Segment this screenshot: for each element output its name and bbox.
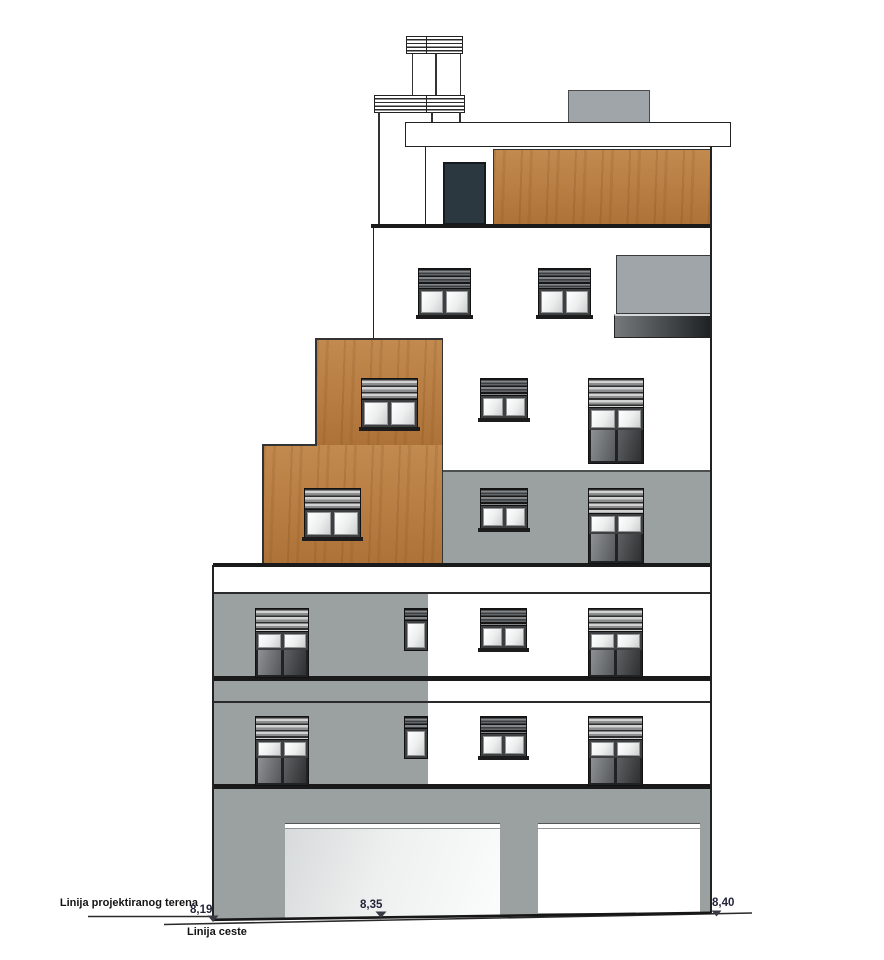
door-glass [589, 514, 643, 534]
window-panes [481, 734, 526, 756]
door-lower-panels [589, 650, 642, 677]
window-sill [478, 648, 529, 652]
roller-shutter-icon [256, 609, 308, 632]
recess-dark-band [614, 314, 711, 338]
chimney-cap [426, 36, 463, 54]
window [361, 378, 418, 428]
terrain-label: Linija projektiranog terena [40, 897, 198, 909]
window-panes [481, 506, 527, 528]
level-marker-icon [712, 911, 722, 917]
window-panes [405, 729, 427, 758]
roller-shutter-icon [589, 379, 643, 408]
window-sill [416, 315, 473, 319]
window-panes [481, 396, 527, 418]
roller-shutter-icon [362, 379, 417, 400]
roller-shutter-icon [481, 489, 527, 506]
ground-floor-wall [213, 789, 711, 920]
level-value-right: 8,40 [712, 897, 734, 909]
building-right-edge [710, 147, 712, 913]
door-lower-panels [589, 758, 642, 785]
window [538, 268, 591, 316]
garage-lintel [285, 824, 500, 829]
recess-panel [616, 255, 711, 314]
roller-shutter-icon [405, 717, 427, 729]
roller-shutter-icon [481, 609, 526, 626]
roller-shutter-icon [539, 269, 590, 289]
door-lower-panels [589, 430, 643, 463]
building-left-edge [212, 565, 214, 920]
narrow-window [404, 716, 428, 759]
roller-shutter-icon [256, 717, 308, 740]
window [418, 268, 471, 316]
door-glass [589, 408, 643, 431]
floor5-white-wall [428, 703, 711, 784]
balcony-door-window [255, 608, 309, 678]
roller-shutter-icon [405, 609, 427, 621]
window-panes [305, 510, 360, 537]
roller-shutter-icon [419, 269, 470, 289]
roller-shutter-icon [589, 717, 642, 740]
balcony-door-window [588, 378, 644, 464]
window-sill [478, 418, 530, 422]
door-glass [589, 632, 642, 650]
roof-slab [405, 122, 731, 147]
window-sill [302, 537, 363, 541]
garage-opening-right [538, 823, 700, 913]
door-glass [256, 632, 308, 650]
road-label: Linija ceste [187, 926, 247, 938]
narrow-window [404, 608, 428, 651]
chimney-stack [412, 50, 436, 96]
floor5-gray-wall [213, 703, 428, 784]
roller-shutter-icon [481, 379, 527, 396]
floor4-gray-wall [213, 594, 428, 678]
penthouse-door [443, 162, 486, 225]
level-value-left: 8,19 [190, 904, 212, 916]
wood-step-line [262, 444, 317, 446]
roller-shutter-icon [589, 489, 643, 514]
door-lower-panels [256, 758, 308, 785]
garage-lintel [538, 824, 700, 829]
chimney-stack [436, 50, 461, 96]
window-panes [405, 621, 427, 650]
window [480, 378, 528, 419]
window [480, 716, 527, 757]
door-lower-panels [256, 650, 308, 677]
floor4-band-gray [213, 681, 428, 702]
window-panes [539, 289, 590, 315]
chimney-wall-line [378, 112, 380, 226]
roller-shutter-icon [481, 717, 526, 734]
window-panes [362, 400, 417, 427]
window-sill [536, 315, 593, 319]
door-glass [256, 740, 308, 758]
chimney-cap [426, 95, 465, 113]
floor4-white-wall [428, 594, 711, 678]
wood-panel-penthouse [493, 149, 711, 225]
parapet-band [213, 567, 711, 593]
door-glass [589, 740, 642, 758]
window [304, 488, 361, 538]
roof-box [568, 90, 650, 124]
balcony-door-window [588, 608, 643, 678]
door-lower-panels [589, 534, 643, 563]
window-sill [478, 528, 530, 532]
elevation-drawing: Linija projektiranog terena 8,19 Linija … [0, 0, 884, 960]
roller-shutter-icon [305, 489, 360, 510]
window-panes [419, 289, 470, 315]
balcony-door-window [588, 716, 643, 786]
balcony-door-window [255, 716, 309, 786]
window [480, 488, 528, 529]
window-sill [478, 756, 529, 760]
roller-shutter-icon [589, 609, 642, 632]
level-value-center: 8,35 [360, 899, 382, 911]
window [480, 608, 527, 649]
garage-opening-left [285, 823, 500, 920]
window-sill [359, 427, 420, 431]
balcony-door-window [588, 488, 644, 564]
window-panes [481, 626, 526, 648]
